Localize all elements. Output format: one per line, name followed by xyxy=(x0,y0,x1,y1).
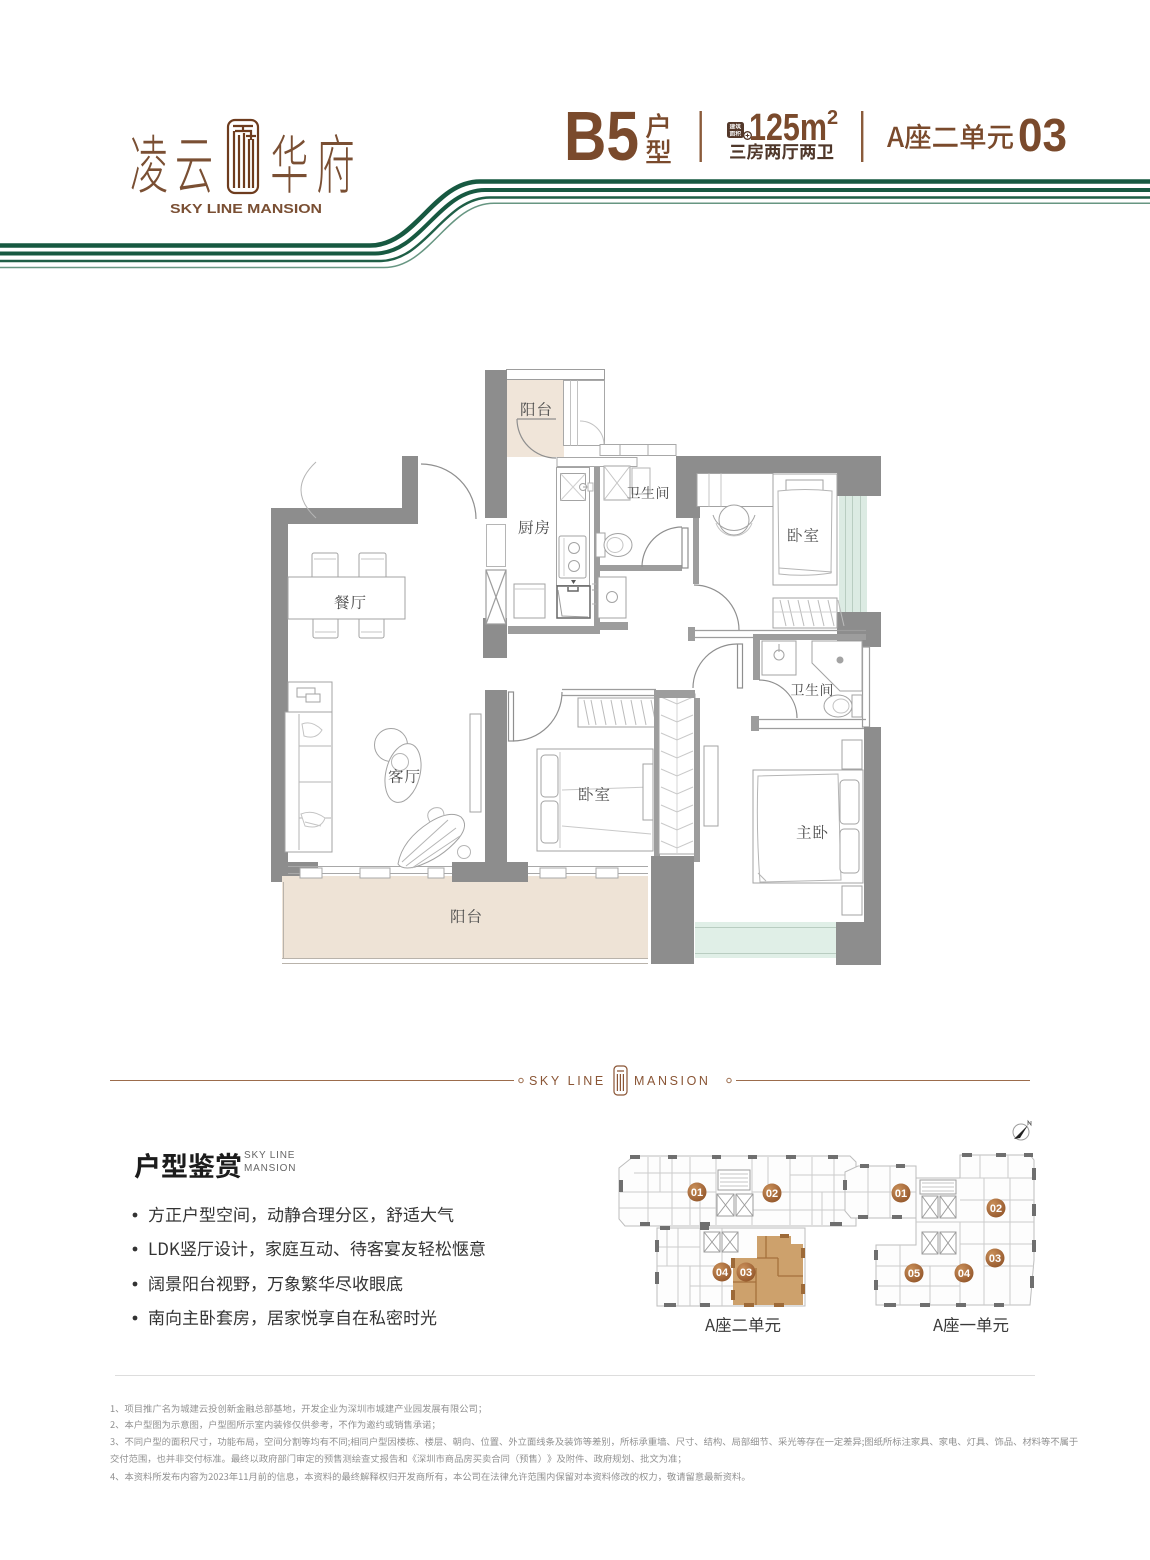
svg-text:2: 2 xyxy=(827,107,838,129)
svg-text:SKY LINE MANSION: SKY LINE MANSION xyxy=(170,201,322,216)
svg-text:MANSION: MANSION xyxy=(244,1163,296,1174)
svg-text:03: 03 xyxy=(989,1253,1001,1265)
svg-text:125m: 125m xyxy=(749,107,827,149)
svg-text:01: 01 xyxy=(691,1187,703,1199)
svg-text:04: 04 xyxy=(958,1268,971,1280)
svg-text:SKY LINE: SKY LINE xyxy=(529,1074,606,1088)
svg-text:03: 03 xyxy=(740,1267,752,1279)
svg-text:05: 05 xyxy=(908,1268,920,1280)
svg-text:MANSION: MANSION xyxy=(634,1074,711,1088)
svg-text:03: 03 xyxy=(1018,109,1067,161)
svg-text:B5: B5 xyxy=(564,97,639,175)
svg-text:02: 02 xyxy=(766,1188,778,1200)
svg-text:04: 04 xyxy=(716,1267,729,1279)
svg-text:02: 02 xyxy=(990,1203,1002,1215)
svg-text:01: 01 xyxy=(895,1188,907,1200)
svg-text:SKY LINE: SKY LINE xyxy=(244,1150,295,1161)
